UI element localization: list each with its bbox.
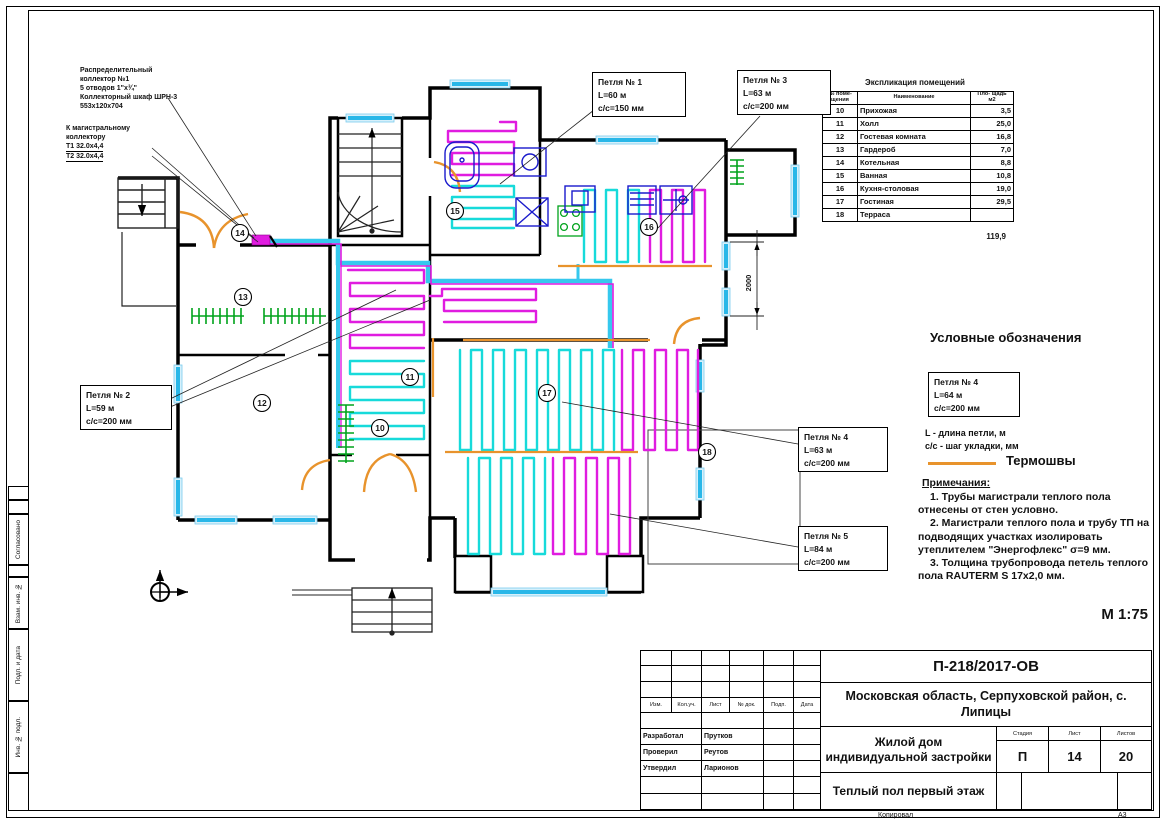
svg-text:18: 18 (702, 447, 712, 457)
tb-sheet-title: Теплый пол первый этаж (820, 772, 997, 810)
svg-text:13: 13 (238, 292, 248, 302)
svg-text:14: 14 (235, 228, 245, 238)
loop2-pipe-hot (348, 270, 424, 348)
dimension-label: 2000 (744, 275, 753, 292)
stove-icon (558, 206, 582, 236)
loop5-label-box: Петля № 5 L=84 м с/с=200 мм (798, 526, 888, 571)
tb-role-approved: Утвердил (640, 760, 702, 777)
tb-stage-value: П (996, 740, 1049, 773)
dimension-2000: 2000 (730, 230, 764, 330)
supply-pipes (268, 241, 613, 448)
tb-location: Московская область, Серпуховской район, … (820, 682, 1152, 727)
tb-col-podp: Подп. (763, 697, 794, 713)
interior-staircase (338, 128, 402, 233)
loop3-label-box: Петля № 3 L=63 м с/с=200 мм (737, 70, 831, 115)
loop1-pipe-hot (448, 122, 516, 175)
tb-col-izm: Изм. (640, 697, 672, 713)
door-openings (196, 158, 702, 564)
tb-sheet-label: Лист (1048, 726, 1101, 741)
tb-doc-number: П-218/2017-ОВ (820, 650, 1152, 683)
loop4-pipe (460, 350, 614, 450)
drawing-sheet: Согласовано Взам. инв. № Подп. и дата Ин… (0, 0, 1166, 824)
room-balloon: 14 (232, 225, 249, 242)
tb-col-koluch: Кол.уч. (671, 697, 702, 713)
collector-annotation: Распределительный коллектор №1 5 отводов… (80, 66, 177, 111)
tb-role-developed: Разработал (640, 728, 702, 745)
room-balloon: 13 (235, 289, 252, 306)
tb-object: Жилой дом индивидуальной застройки (820, 726, 997, 773)
loop4-pipe-bay (468, 458, 545, 554)
tb-role-checked: Проверил (640, 744, 702, 761)
tb-name-developed: Прутков (701, 728, 764, 745)
north-arrow-icon (151, 570, 188, 601)
loop2-pipe-ext (430, 289, 536, 322)
room-balloon: 18 (699, 444, 716, 461)
svg-text:16: 16 (644, 222, 654, 232)
room-balloon: 15 (447, 203, 464, 220)
svg-text:12: 12 (257, 398, 267, 408)
tb-sheets-value: 20 (1100, 740, 1152, 773)
loop1-label-box: Петля № 1 L=60 м с/с=150 мм (592, 72, 686, 117)
entry-porch-stairs (118, 178, 178, 306)
tb-name-approved: Ларионов (701, 760, 764, 777)
room-balloon: 10 (372, 420, 389, 437)
room-balloon: 16 (641, 219, 658, 236)
svg-text:15: 15 (450, 206, 460, 216)
svg-text:11: 11 (406, 372, 415, 382)
tb-col-data: Дата (793, 697, 821, 713)
tb-name-checked: Реутов (701, 744, 764, 761)
loop3-pipe-hot (650, 190, 705, 262)
tb-sheets-label: Листов (1100, 726, 1152, 741)
loop2-label-box: Петля № 2 L=59 м с/с=200 мм (80, 385, 172, 430)
tb-col-list: Лист (701, 697, 730, 713)
loop3-pipe-cool (584, 190, 639, 262)
pipe-t2-label: Т2 32.0х4,4 (66, 152, 103, 162)
tb-stage-label: Стадия (996, 726, 1049, 741)
tb-sheet-value: 14 (1048, 740, 1101, 773)
svg-text:17: 17 (542, 388, 552, 398)
room-balloon: 17 (539, 385, 556, 402)
tb-col-ndok: № док. (729, 697, 764, 713)
loop5-pipe-bay (553, 458, 630, 554)
legend-example-box: Петля № 4 L=64 м с/с=200 мм (928, 372, 1020, 417)
loop4-label-box: Петля № 4 L=63 м с/с=200 мм (798, 427, 888, 472)
loop5-pipe (622, 350, 698, 450)
main-collector-annotation: К магистральному коллектору Т1 32.0х4,4 … (66, 124, 130, 162)
svg-text:10: 10 (375, 423, 385, 433)
title-block: Изм. Кол.уч. Лист № док. Подп. Дата Разр… (640, 650, 1152, 810)
room-balloon: 12 (254, 395, 271, 412)
room-balloon: 11 (402, 369, 419, 386)
thermal-joints (433, 266, 712, 452)
pipe-t1-label: Т1 32.0х4,4 (66, 142, 103, 152)
exterior-bottom-stairs (292, 588, 432, 635)
